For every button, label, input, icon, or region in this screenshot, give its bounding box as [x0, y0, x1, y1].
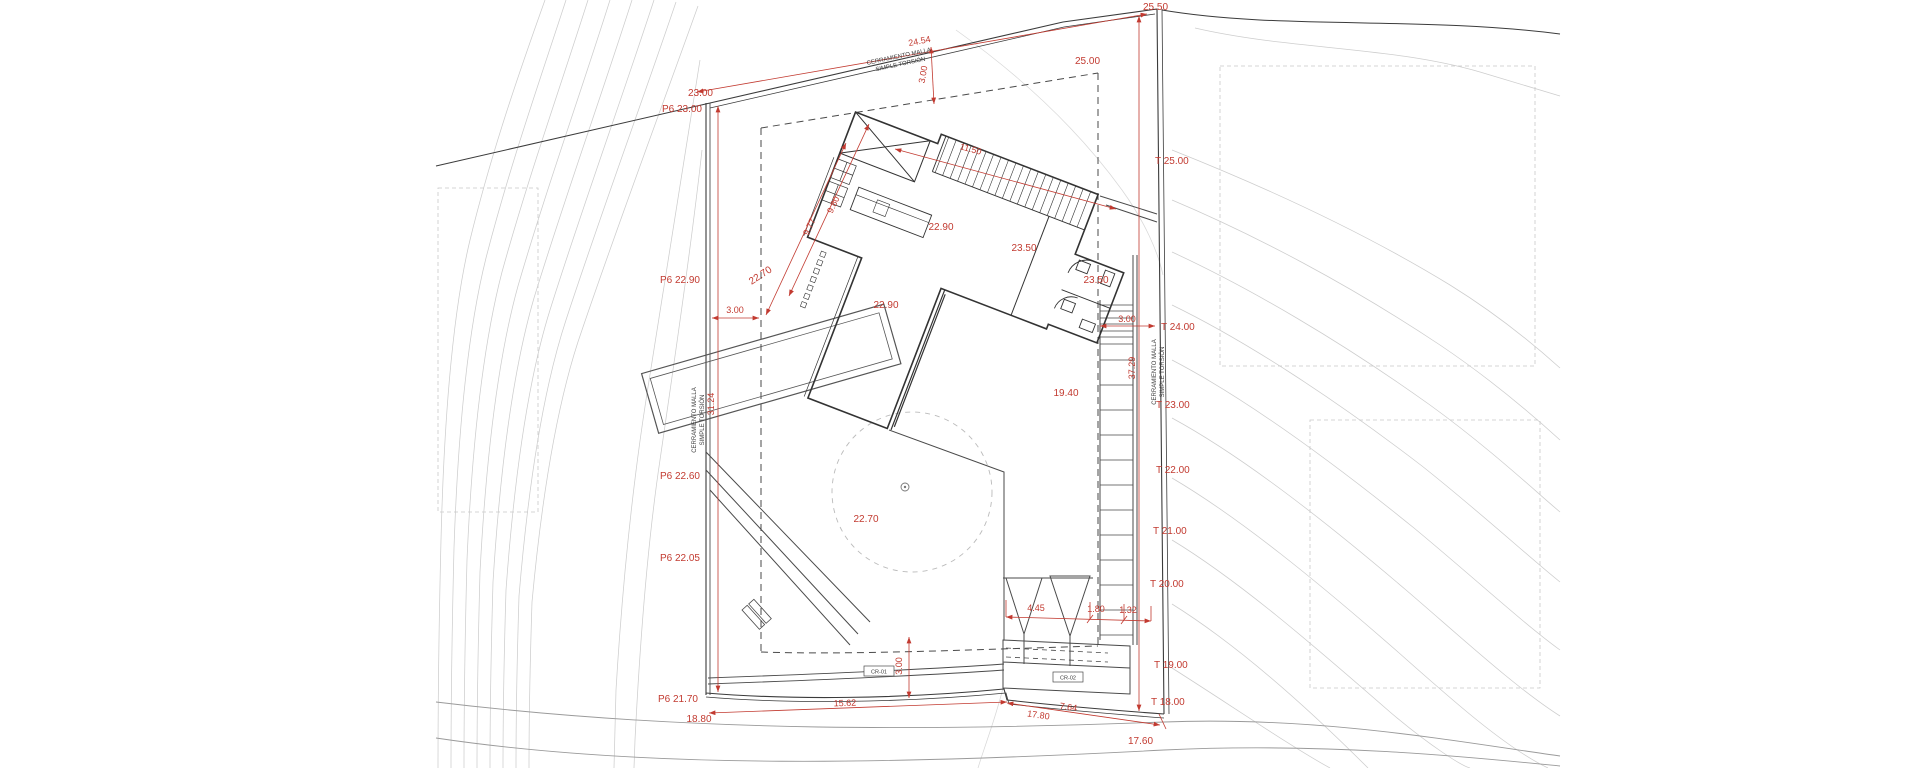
bathroom [1051, 254, 1124, 335]
perimeter-label-p6-2300: P6 23.00 [662, 104, 702, 115]
perimeter-label-p6-2290: P6 22.90 [660, 275, 700, 286]
terrain-label-t1800: T 18.00 [1151, 697, 1185, 708]
level-bottom-right: 17.60 [1128, 736, 1153, 747]
kitchen-island-detail [852, 192, 929, 232]
building-footprint [754, 103, 1147, 488]
floor-level-upper-b: 23.50 [1083, 275, 1108, 286]
building [750, 101, 1147, 487]
terrain-label-t2100: T 21.00 [1153, 526, 1187, 537]
dim-label-setback-left: 3.00 [726, 305, 744, 315]
floor-level-path: 22.70 [747, 264, 774, 287]
pool-outer [642, 304, 901, 433]
terraced-wall-lines [706, 452, 870, 645]
stair-treads [1100, 305, 1133, 635]
level-top-left: 23.00 [688, 88, 713, 99]
boundary-continuation-lines [436, 10, 1560, 166]
contour-lines-left [438, 0, 702, 768]
dim-label-setback-top: 3.00 [917, 65, 930, 84]
fence-label-left-line1: CERRAMIENTO MALLA [692, 387, 698, 453]
site-plan-drawing: 23.00 P6 23.00 P6 22.90 P6 22.60 P6 22.0… [0, 0, 1920, 768]
dim-label-stair-edge: 11.50 [959, 141, 983, 156]
ref-box-cr01-label: CR-01 [871, 670, 887, 676]
dim-label-right-boundary: 37.29 [1127, 357, 1137, 380]
terrain-label-t2000: T 20.00 [1150, 579, 1184, 590]
driveway-dashed-path [1006, 648, 1108, 662]
circular-terrace [832, 412, 992, 572]
dim-line-court-chain [1006, 617, 1151, 621]
neighbor-setback-lines [438, 66, 1540, 688]
dim-label-left-boundary: 31.24 [706, 393, 716, 416]
terrace-court-edge [889, 430, 1004, 640]
dim-label-court-c: 1.32 [1119, 605, 1137, 615]
floor-level-terrace: 22.70 [853, 514, 878, 525]
site-plan-canvas: 23.00 P6 23.00 P6 22.90 P6 22.60 P6 22.0… [0, 0, 1920, 768]
fence-label-left: CERRAMIENTO MALLA SIMPLE TORSIÓN [692, 387, 706, 453]
floor-level-stair-landing: 19.40 [1053, 388, 1078, 399]
dim-label-court-a: 4.45 [1027, 603, 1045, 613]
fence-label-right-line1: CERRAMIENTO MALLA [1152, 339, 1158, 405]
ref-box-cr02: CR-02 [1053, 672, 1083, 682]
perimeter-label-p6-2260: P6 22.60 [660, 471, 700, 482]
dim-tick-corner [1159, 714, 1166, 729]
terrain-label-t2500: T 25.00 [1155, 156, 1189, 167]
dim-label-top-boundary: 24.54 [907, 34, 931, 48]
driveway-outline [1003, 640, 1130, 694]
terrain-label-t2400: T 24.00 [1161, 322, 1195, 333]
floor-level-upper-a: 23.50 [1011, 243, 1036, 254]
ref-box-cr02-label: CR-02 [1060, 676, 1076, 682]
terrain-label-t2300: T 23.00 [1156, 400, 1190, 411]
neighbor-setback-right-upper [1220, 66, 1535, 366]
contour-lines [438, 0, 1560, 768]
fence-post-chain [800, 251, 826, 308]
ref-box-cr01: CR-01 [864, 666, 894, 676]
level-top-right: 25.50 [1143, 2, 1168, 13]
dim-label-setback-bottom: 3.00 [894, 657, 904, 675]
contour-lines-right [1172, 28, 1560, 768]
kitchen-island [850, 187, 931, 237]
interior-stair-rail [932, 136, 1098, 230]
dim-label-house-side-a: 9.80 [825, 195, 841, 215]
fence-label-left-line2: SIMPLE TORSIÓN [699, 395, 706, 446]
terrain-label-t1900: T 19.00 [1154, 660, 1188, 671]
lower-terrace-edges [708, 664, 1004, 684]
dim-label-bottom-c: 7.64 [1059, 701, 1078, 713]
dim-label-setback-right: 3.00 [1118, 314, 1136, 324]
dim-line-bottom-a [709, 702, 1007, 713]
dim-label-court-b: 1.80 [1087, 604, 1105, 614]
retaining-triangles [1003, 576, 1093, 666]
terrace-circle-dashed [832, 412, 992, 572]
floor-level-living-b: 22.90 [873, 300, 898, 311]
pool-inner [650, 313, 892, 425]
dim-label-bottom-a: 15.62 [833, 698, 856, 709]
setback-line [761, 73, 1098, 653]
contour-lines-inner [956, 30, 1163, 768]
dim-line-setback-top [931, 47, 934, 104]
terrain-label-t2200: T 22.00 [1156, 465, 1190, 476]
level-setback-platform: 25.00 [1075, 56, 1100, 67]
neighbor-setback-right-lower [1310, 420, 1540, 688]
garden-steps [742, 599, 771, 629]
glazing-lines [750, 157, 888, 396]
road-edge-lines [436, 702, 1560, 766]
road-edges [436, 702, 1560, 766]
pool [642, 304, 901, 433]
floor-level-living-a: 22.90 [928, 222, 953, 233]
fence-label-right: CERRAMIENTO MALLA SIMPLE TORSIÓN [1152, 339, 1166, 405]
property-boundary [436, 9, 1560, 718]
terrace-center-dot [904, 486, 906, 488]
fence-label-right-line2: SIMPLE TORSIÓN [1159, 347, 1166, 398]
perimeter-label-p6-2205: P6 22.05 [660, 553, 700, 564]
perimeter-label-p6-2170: P6 21.70 [658, 694, 698, 705]
level-bottom-left: 18.80 [686, 714, 711, 725]
interior-wall [1011, 216, 1049, 315]
dim-label-bottom-b: 17.80 [1027, 709, 1051, 722]
